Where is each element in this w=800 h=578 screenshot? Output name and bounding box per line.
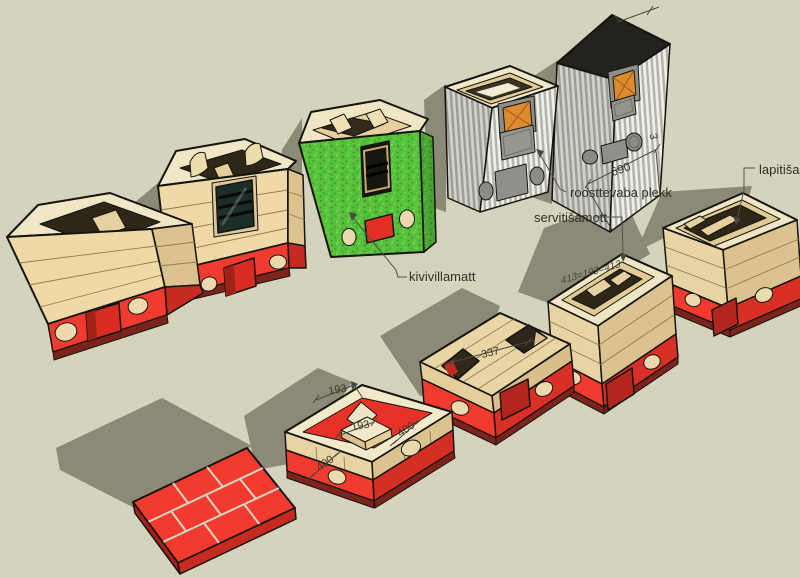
vent-hole-left	[342, 229, 356, 246]
red-base-side	[288, 243, 306, 268]
vent-hole-right	[400, 210, 415, 228]
model-viewport[interactable]: kivivillamatt roosttevaba plekk servitiš…	[0, 0, 800, 578]
label-servitisamott: servitišamott	[534, 210, 607, 225]
label-roostevaba-plekk: roosttevaba plekk	[570, 185, 672, 200]
air-vent-round-left	[583, 150, 598, 164]
clad-stove-open	[445, 66, 558, 212]
air-vent-round-left	[479, 182, 493, 200]
air-vent-round-right	[530, 167, 544, 185]
label-lapitisamott: lapitišamott	[759, 162, 800, 177]
vent-hole-right	[270, 255, 287, 269]
label-kivivillamatt: kivivillamatt	[409, 269, 476, 284]
